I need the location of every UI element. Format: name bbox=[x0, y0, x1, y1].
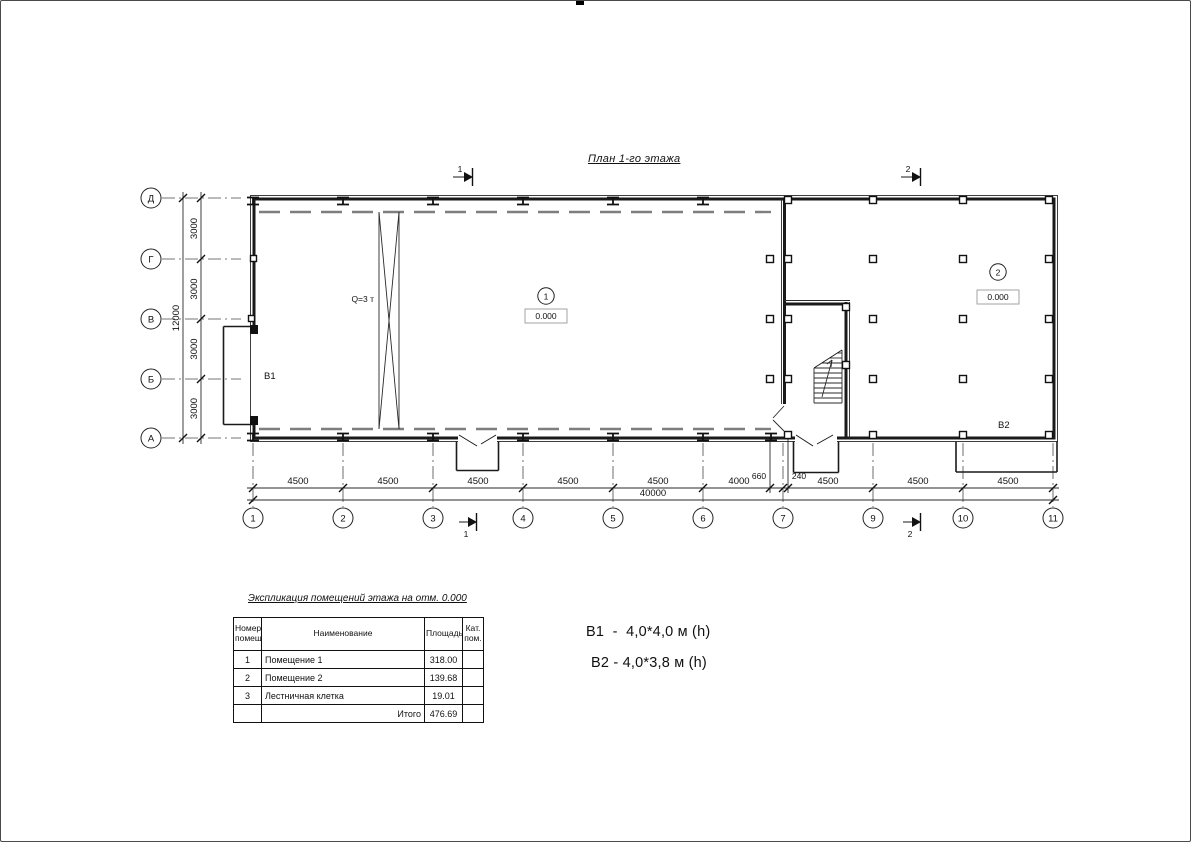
table-row: 2 Помещение 2 139.68 bbox=[234, 669, 484, 687]
bottom-total-dimension: 40000 bbox=[640, 488, 666, 499]
svg-text:4500: 4500 bbox=[377, 476, 398, 487]
svg-text:6: 6 bbox=[700, 514, 705, 525]
square-columns-grid bbox=[249, 197, 1053, 439]
stairwell-walls bbox=[784, 301, 850, 439]
svg-text:11: 11 bbox=[1048, 514, 1058, 525]
crane-rail-dashed-lines bbox=[259, 212, 771, 429]
building-outline bbox=[251, 196, 1058, 442]
col-header-area: Площадь bbox=[425, 618, 463, 651]
svg-text:660: 660 bbox=[752, 471, 766, 481]
svg-text:5: 5 bbox=[610, 514, 615, 525]
col-header-name: Наименование bbox=[262, 618, 425, 651]
drawing-sheet: План 1-го этажа bbox=[0, 0, 1191, 842]
svg-text:Д: Д bbox=[148, 194, 155, 205]
bottom-dimension-lines: 4500 4500 4500 4500 4500 4000 660 240 45… bbox=[247, 471, 1059, 504]
svg-text:Б: Б bbox=[148, 375, 154, 386]
svg-text:3000: 3000 bbox=[189, 338, 200, 359]
svg-text:4: 4 bbox=[520, 514, 525, 525]
svg-text:4500: 4500 bbox=[817, 476, 838, 487]
section-mark-1-top: 1 bbox=[453, 164, 473, 186]
vent-label-b1: B1 bbox=[264, 371, 276, 382]
svg-text:240: 240 bbox=[792, 471, 806, 481]
svg-text:2: 2 bbox=[996, 268, 1001, 278]
svg-text:2: 2 bbox=[906, 164, 911, 174]
svg-text:10: 10 bbox=[958, 514, 969, 525]
note-b1: B1 - 4,0*4,0 м (h) bbox=[586, 624, 710, 640]
room2-marker: 2 0.000 bbox=[977, 264, 1019, 304]
explication-title: Экспликация помещений этажа на отм. 0.00… bbox=[248, 593, 467, 604]
svg-text:4500: 4500 bbox=[557, 476, 578, 487]
svg-text:1: 1 bbox=[464, 529, 469, 539]
right-dock-platform bbox=[956, 442, 1057, 473]
left-axis-bubbles: Д Г В Б А bbox=[141, 188, 161, 448]
table-total-row: Итого 476.69 bbox=[234, 705, 484, 723]
svg-text:3000: 3000 bbox=[189, 278, 200, 299]
svg-text:1: 1 bbox=[544, 292, 549, 302]
explication-table: Номер помещ. Наименование Площадь Кат. п… bbox=[233, 617, 484, 723]
svg-text:А: А bbox=[148, 434, 155, 445]
total-value: 476.69 bbox=[425, 705, 463, 723]
svg-text:4500: 4500 bbox=[287, 476, 308, 487]
table-row: 1 Помещение 1 318.00 bbox=[234, 651, 484, 669]
col-header-category: Кат. пом. bbox=[463, 618, 484, 651]
col-header-number: Номер помещ. bbox=[234, 618, 262, 651]
room2-level: 0.000 bbox=[987, 292, 1009, 302]
floor-plan-drawing: Q=3 т bbox=[1, 1, 1190, 576]
svg-text:3000: 3000 bbox=[189, 398, 200, 419]
left-dock-platform bbox=[224, 325, 259, 425]
room1-marker: 1 0.000 bbox=[525, 288, 567, 323]
svg-text:7: 7 bbox=[780, 514, 785, 525]
total-label: Итого bbox=[262, 705, 425, 723]
left-total-dimension: 12000 bbox=[171, 305, 182, 331]
svg-text:4500: 4500 bbox=[467, 476, 488, 487]
svg-text:2: 2 bbox=[340, 514, 345, 525]
svg-text:В: В bbox=[148, 315, 154, 326]
section-mark-2-bottom: 2 bbox=[903, 513, 921, 539]
svg-text:3000: 3000 bbox=[189, 218, 200, 239]
section-mark-1-bottom: 1 bbox=[459, 513, 477, 539]
svg-text:4000: 4000 bbox=[728, 476, 749, 487]
table-row: 3 Лестничная клетка 19.01 bbox=[234, 687, 484, 705]
bottom-axis-bubbles: 1 2 3 4 5 6 7 9 10 11 bbox=[243, 508, 1063, 528]
room1-level: 0.000 bbox=[535, 311, 557, 321]
svg-text:1: 1 bbox=[250, 514, 255, 525]
crane-capacity-label: Q=3 т bbox=[351, 294, 374, 304]
svg-text:4500: 4500 bbox=[647, 476, 668, 487]
svg-text:Г: Г bbox=[148, 255, 153, 266]
divider-wall-axis7 bbox=[773, 199, 785, 431]
svg-text:1: 1 bbox=[458, 164, 463, 174]
section-mark-2-top: 2 bbox=[901, 164, 921, 186]
svg-text:4500: 4500 bbox=[907, 476, 928, 487]
note-b2: B2 - 4,0*3,8 м (h) bbox=[591, 655, 707, 671]
svg-text:4500: 4500 bbox=[997, 476, 1018, 487]
svg-text:3: 3 bbox=[430, 514, 435, 525]
axis-extension-lines bbox=[162, 198, 1053, 507]
entrance-door-2 bbox=[794, 432, 839, 473]
vent-label-b2: B2 bbox=[998, 420, 1010, 431]
svg-text:9: 9 bbox=[870, 514, 875, 525]
crane-bracing-cross bbox=[379, 212, 399, 429]
svg-text:2: 2 bbox=[908, 529, 913, 539]
staircase bbox=[814, 350, 842, 403]
entrance-door-1 bbox=[457, 432, 499, 471]
left-dimension-lines: 3000 3000 3000 3000 12000 bbox=[171, 192, 205, 444]
